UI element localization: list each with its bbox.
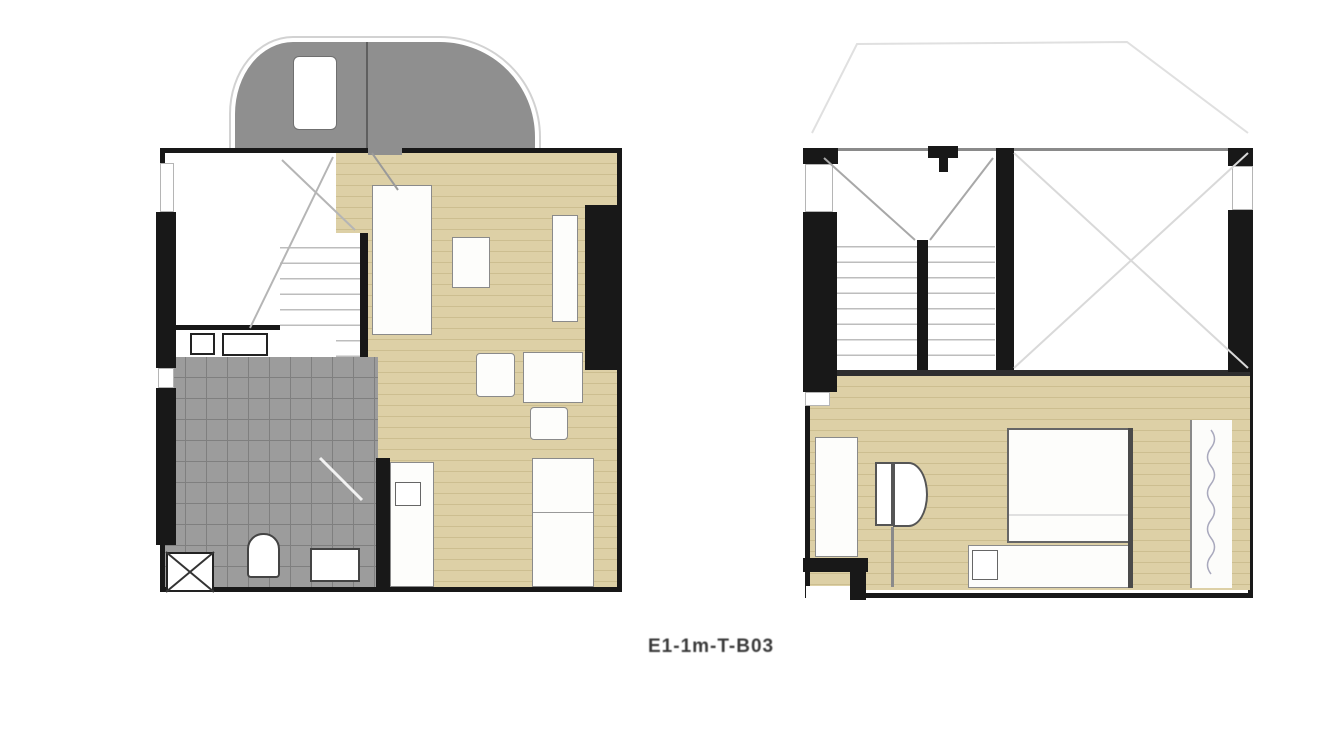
kitchen-counter-right [532,458,594,587]
stair-side-wall [360,233,368,363]
dining-chair-left [476,353,515,397]
floor-plan-upper [800,38,1260,606]
bathroom-sink [310,548,360,582]
shower-cabinet [815,437,858,557]
wall-left-mid-upper [803,212,837,392]
wardrobe-closet [372,185,432,335]
floor-plan-lower [155,38,625,598]
dining-table [523,352,583,403]
toilet-partition-line [891,527,894,587]
bed-wall-partition [1128,428,1133,588]
window-recess-left-top [160,163,174,212]
kitchen-counter-left [390,462,434,587]
wall-right-mid [1228,210,1253,372]
roof-outline [812,42,1248,133]
window-recess-right [1232,166,1253,210]
toilet-fixture [247,533,280,578]
bed [1007,428,1130,543]
counter-divider-line [533,512,593,513]
window-recess-left-lower [805,392,830,406]
toilet-tank-upper [875,462,893,526]
bath-kitchen-wall [376,458,390,592]
top-wall-column-stub [939,158,948,172]
ac-shaft-unit [166,552,214,592]
staircase-upper [822,232,995,378]
wall-left-lower [156,388,176,545]
side-table [452,237,490,288]
kitchenette-sink [972,550,998,580]
terrace-door-opening [368,144,402,155]
terrace-divider-wall [366,42,368,150]
stair-room-divider-wall [996,148,1014,376]
bottom-left-border-cut [806,586,852,600]
wall-left-corner-upper [803,148,838,164]
window-recess-left-mid [158,368,174,388]
window-recess-left-upper [805,164,833,212]
wardrobe-upper [1190,420,1232,588]
window-frame-right [585,205,622,370]
door-threshold-large [222,333,268,356]
top-wall-column [928,146,958,158]
terrace-skylight [293,56,337,130]
sofa-bench [552,215,578,322]
terrace-balcony [235,42,535,150]
inset-wall-vertical [850,572,866,600]
wall-left-upper [156,212,176,368]
plan-caption: E1-1m-T-B03 [648,636,774,658]
inset-wall-horizontal [803,558,868,572]
stair-center-wall [917,240,928,378]
dining-chair-bottom [530,407,568,440]
door-threshold-small [190,333,215,355]
kitchen-sink [395,482,421,506]
wall-right-corner-upper [1228,148,1253,166]
